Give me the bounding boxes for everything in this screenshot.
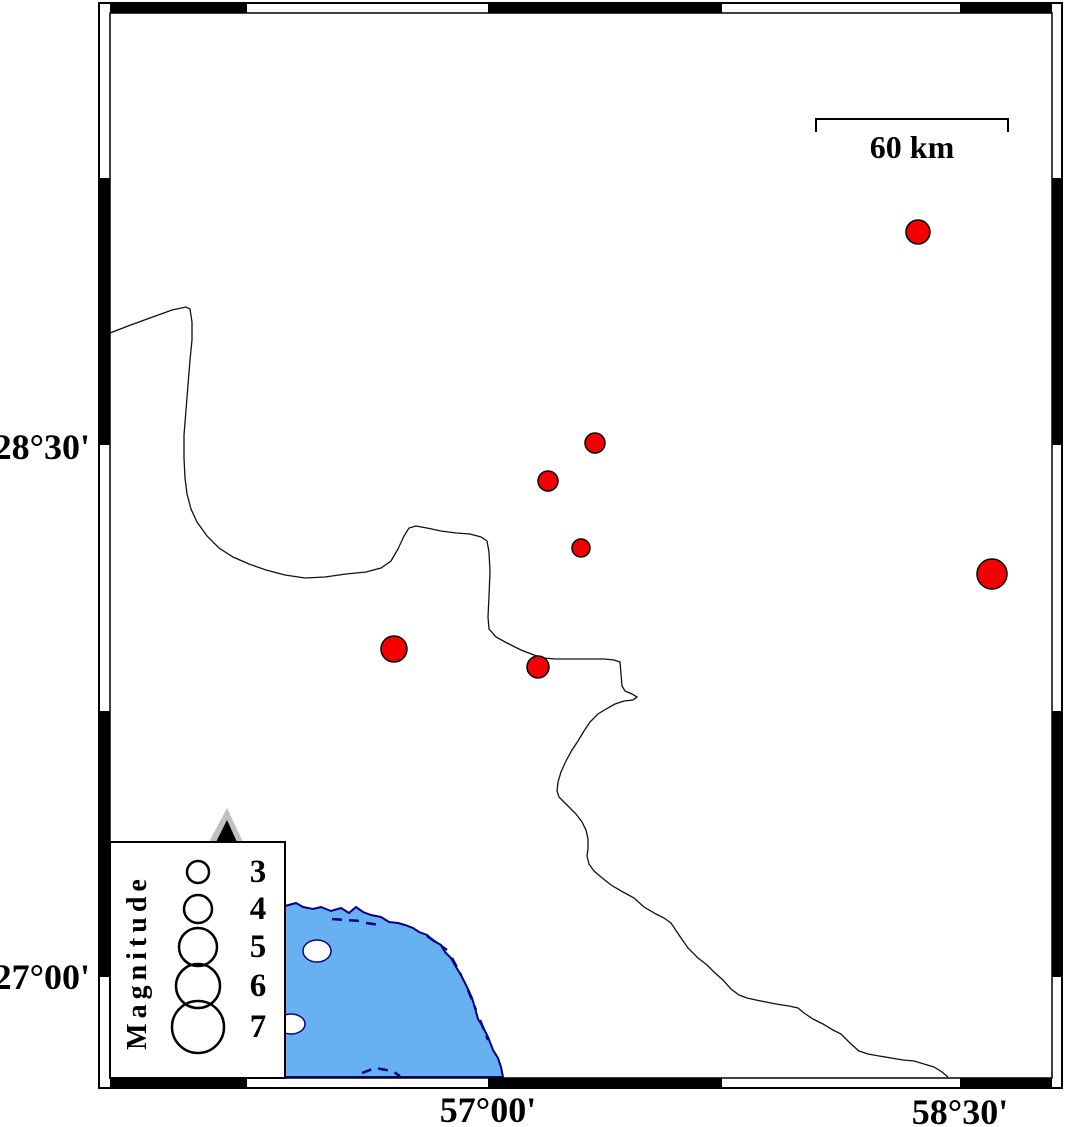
earthquake-marker xyxy=(572,539,590,557)
axis-label-bottom-1: 58°30' xyxy=(912,1092,1008,1127)
legend-label-mag-4: 4 xyxy=(250,891,267,927)
frame-tick-segment-top xyxy=(488,3,722,13)
frame-tick-segment-bottom xyxy=(960,1078,1052,1088)
frame-tick-segment-left xyxy=(99,711,110,977)
legend-label-mag-3: 3 xyxy=(250,854,267,890)
frame-tick-segment-right xyxy=(1052,178,1062,445)
axis-label-left-0: 28°30' xyxy=(0,427,90,467)
scale-bar: 60 km xyxy=(816,119,1008,165)
frame-tick-segment-right xyxy=(1052,711,1062,977)
axis-label-bottom-0: 57°00' xyxy=(440,1090,536,1127)
legend-title: Magnitude xyxy=(122,874,153,1050)
legend-label-mag-5: 5 xyxy=(250,929,267,965)
seismicity-map: 60 km 34567 Magnitude 28°30'27°00'57°00'… xyxy=(0,0,1066,1127)
legend-label-mag-6: 6 xyxy=(250,968,267,1004)
sea-polygon xyxy=(285,903,503,1077)
axis-label-left-1: 27°00' xyxy=(0,957,90,997)
frame-tick-segment-bottom xyxy=(110,1078,247,1088)
frame-tick-segment-top xyxy=(110,3,247,13)
earthquake-marker xyxy=(585,433,605,453)
earthquake-markers-layer xyxy=(381,220,1007,678)
sea-layer xyxy=(277,903,503,1077)
island xyxy=(303,940,331,962)
scale-bar-label: 60 km xyxy=(870,129,955,165)
legend-label-mag-7: 7 xyxy=(250,1009,267,1045)
frame-tick-segment-top xyxy=(960,3,1052,13)
earthquake-marker xyxy=(527,656,549,678)
frame-tick-segment-left xyxy=(99,178,110,445)
earthquake-marker xyxy=(977,559,1007,589)
earthquake-marker xyxy=(906,220,930,244)
earthquake-marker xyxy=(538,471,558,491)
earthquake-marker xyxy=(381,636,407,662)
frame-tick-segment-bottom xyxy=(488,1078,722,1088)
seismicity-map-page: 60 km 34567 Magnitude 28°30'27°00'57°00'… xyxy=(0,0,1066,1127)
